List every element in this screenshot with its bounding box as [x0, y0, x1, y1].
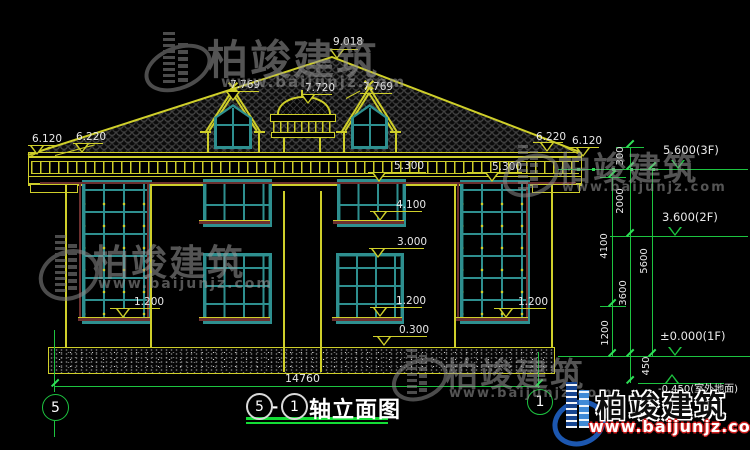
level-dim-1200-center-triangle: [373, 308, 387, 317]
floor-level-2f: 3.600(2F): [662, 212, 718, 224]
eave-dim-far-left: 6.120: [32, 134, 62, 145]
window-1f-right: [336, 253, 404, 324]
dim-chain-line-c: [652, 169, 653, 356]
dim-dormer-left-triangle: [226, 92, 240, 101]
window-2f-right-sill: [333, 220, 404, 224]
dormer-left-flare-b: [254, 131, 265, 133]
elevation-drawing-canvas: 9.018 7.720 7.769 7.769 6.120 6.220 6.22…: [0, 0, 750, 450]
eave-dim-right-triangle: [540, 143, 554, 152]
vdim-4100: 4100: [600, 224, 610, 268]
watermark-swoosh: [137, 35, 218, 102]
title-axis-end-number: 1: [290, 399, 299, 415]
level-dim-1200-center: 1.200: [396, 296, 426, 307]
level-dim-1200-left: 1.200: [134, 297, 164, 308]
axis-bubble-left-number: 5: [51, 400, 60, 416]
axis-bubble-right-number: 1: [536, 394, 545, 410]
dim-dormer-left-label: 7.769: [230, 80, 260, 91]
total-width-dim-line: [54, 386, 540, 387]
dim-ridge-triangle: [330, 50, 344, 59]
eave-dim-left: 6.220: [76, 132, 106, 143]
dormer-left-window-mullion-v: [232, 108, 234, 149]
brand-logo-building-bar2: [579, 390, 589, 428]
watermark-url: www.baijunjz.com: [562, 180, 727, 195]
watermark-building-bar2: [68, 243, 77, 291]
dormer-left-side-b: [258, 131, 260, 152]
level-dim-4100: 4.100: [396, 200, 426, 211]
level-node-dot-3: [612, 168, 615, 171]
vdim-5600: 5600: [640, 239, 650, 283]
floor-level-3f-triangle: [671, 160, 685, 169]
watermark-logo-icon: [143, 32, 205, 90]
floor-level-1f-triangle: [668, 347, 682, 356]
dim-cupola-label: 7.720: [305, 83, 335, 94]
level-dim-3000: 3.000: [397, 237, 427, 248]
cupola-cap-ledge: [271, 132, 335, 138]
level-dim-0300: 0.300: [399, 325, 429, 336]
plinth-strip: [48, 347, 555, 374]
tall-window-right-trim-a: [457, 184, 459, 317]
wall-trim-left: [150, 184, 152, 347]
window-1f-right-sill: [332, 317, 402, 321]
level-dim-5300-right-triangle: [485, 173, 499, 182]
plinth-chimney-line-a: [283, 347, 285, 372]
level-node-dot-5: [652, 168, 655, 171]
title-axis-dash: -: [272, 398, 278, 416]
cornice-top-line: [29, 156, 581, 158]
level-dim-3000-triangle: [371, 249, 385, 258]
chimney-stack-right: [320, 191, 322, 347]
vdim-300: 300: [616, 134, 626, 178]
axis-bubble-right: 1: [527, 389, 553, 415]
dormer-right-flare-a: [336, 131, 347, 133]
brand-logo-url: www.baijunjz.com: [589, 417, 750, 436]
chimney-neck-left: [283, 137, 285, 153]
level-dim-1200-left-triangle: [116, 309, 130, 318]
wall-edge-right: [551, 184, 553, 347]
dormer-left-flare-a: [200, 131, 211, 133]
title-axis-start-number: 5: [255, 399, 264, 415]
window-2f-right-grid: [340, 182, 403, 224]
vdim-3600: 3600: [619, 271, 629, 315]
wall-edge-left: [65, 184, 67, 347]
brand-logo-building-bar: [566, 382, 577, 428]
dormer-right-window-mullion-v: [369, 108, 371, 149]
dormer-right-side-a: [343, 131, 345, 152]
window-1f-right-grid: [339, 256, 401, 321]
floor-level-3f: 5.600(3F): [663, 145, 719, 157]
dim-chain-line-a: [612, 177, 613, 356]
window-1f-left: [203, 253, 272, 324]
level-node-dot-4: [630, 168, 633, 171]
window-1f-left-grid: [206, 256, 269, 321]
eave-dim-far-right: 6.120: [572, 136, 602, 147]
dormer-right-window-mullion-h: [351, 124, 388, 126]
dim-dormer-right-label: 7.769: [363, 82, 393, 93]
chimney-neck-right: [319, 137, 321, 153]
vdim-1200: 1200: [601, 311, 611, 355]
cornice-shadow-line: [40, 182, 576, 184]
floor-level-1f: ±0.000(1F): [660, 331, 725, 343]
dormer-left-side-a: [207, 131, 209, 152]
eave-dim-right: 6.220: [536, 132, 566, 143]
tall-window-right-sill: [456, 317, 528, 321]
axis-bubble-left: 5: [42, 394, 69, 421]
dim-dormer-right-underline: [360, 93, 392, 94]
plinth-chimney-line-b: [320, 347, 322, 372]
dim-chain-line-b: [630, 147, 631, 383]
elevation-title: 轴立面图: [309, 392, 401, 424]
dormer-right-side-b: [395, 131, 397, 152]
window-2f-left-sill: [199, 220, 270, 224]
level-dim-4100-triangle: [373, 212, 387, 221]
watermark-building-bar: [163, 32, 175, 83]
level-node-dot-1: [577, 168, 580, 171]
window-1f-left-sill: [199, 317, 270, 321]
window-2f-left-grid: [206, 182, 269, 224]
level-dim-5300-right: 5.300: [492, 162, 522, 173]
title-axis-circle-start: 5: [246, 393, 273, 420]
level-node-dot-2: [592, 168, 595, 171]
level-dim-0300-triangle: [377, 337, 391, 346]
tall-window-left-sill: [78, 317, 150, 321]
dormer-left-window-mullion-h: [214, 124, 252, 126]
cornice-corbel-left: [30, 184, 78, 193]
level-dim-1200-right-triangle: [499, 309, 513, 318]
level-dim-5300-center-triangle: [372, 173, 386, 182]
vdim-2000: 2000: [616, 179, 626, 223]
chimney-stack-left: [283, 191, 285, 347]
dim-ridge-label: 9.018: [333, 37, 363, 48]
grid-axis-line-left-lower: [54, 421, 55, 437]
total-width-dim: 14760: [285, 373, 320, 384]
level-line-1f: [558, 356, 750, 357]
cornice-corbel-right: [532, 184, 580, 193]
level-dim-1200-right: 1.200: [518, 297, 548, 308]
dim-cupola-triangle: [301, 95, 315, 104]
level-dim-5300-center: 5.300: [394, 161, 424, 172]
watermark-building-bar2: [178, 41, 188, 82]
title-axis-circle-end: 1: [281, 393, 308, 420]
brand-logo: 柏竣建筑 www.baijunjz.com: [552, 376, 750, 442]
wall-trim-right: [454, 184, 456, 347]
floor-level-2f-triangle: [668, 227, 682, 236]
tall-window-left-trim-a: [79, 184, 81, 317]
